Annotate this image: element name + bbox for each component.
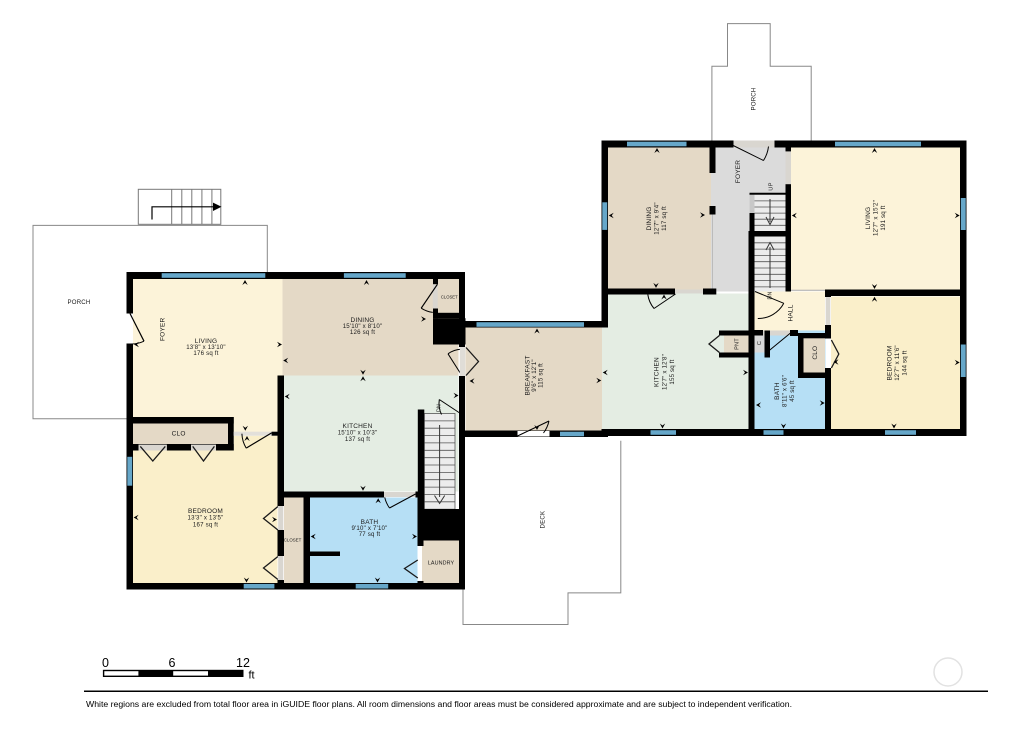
svg-text:117 sq ft: 117 sq ft (661, 206, 668, 231)
svg-text:12'7" x 9'4": 12'7" x 9'4" (654, 202, 661, 234)
svg-text:CLOSET: CLOSET (284, 538, 302, 543)
svg-text:77 sq ft: 77 sq ft (359, 531, 381, 538)
svg-text:176 sq ft: 176 sq ft (193, 350, 218, 357)
svg-text:UP: UP (769, 182, 775, 190)
svg-text:191 sq ft: 191 sq ft (880, 205, 887, 230)
svg-text:167 sq ft: 167 sq ft (193, 521, 218, 528)
svg-text:PORCH: PORCH (67, 299, 90, 306)
svg-text:CLO: CLO (172, 431, 186, 438)
svg-text:115 sq ft: 115 sq ft (538, 363, 545, 388)
svg-text:BATH: BATH (774, 382, 781, 400)
svg-text:PORCH: PORCH (751, 87, 758, 110)
svg-text:8'11" x 6'6": 8'11" x 6'6" (782, 375, 789, 407)
svg-text:DECK: DECK (540, 511, 547, 529)
svg-text:6: 6 (169, 656, 176, 670)
svg-text:144 sq ft: 144 sq ft (902, 350, 909, 375)
svg-text:CLOSET: CLOSET (441, 295, 458, 300)
svg-text:12'7" x 15'2": 12'7" x 15'2" (873, 200, 880, 236)
svg-text:FOYER: FOYER (160, 318, 167, 341)
svg-text:12: 12 (236, 656, 250, 670)
svg-text:DINING: DINING (646, 207, 653, 231)
svg-text:FOYER: FOYER (735, 160, 742, 183)
svg-text:PNT: PNT (735, 338, 741, 350)
svg-text:ft: ft (249, 670, 255, 682)
svg-text:0: 0 (102, 656, 109, 670)
svg-text:LIVING: LIVING (865, 207, 872, 230)
svg-text:CLO: CLO (812, 346, 819, 360)
svg-text:LAUNDRY: LAUNDRY (428, 561, 455, 567)
svg-text:DN: DN (768, 292, 774, 300)
svg-text:C: C (757, 341, 763, 345)
svg-text:12'7" x 11'6": 12'7" x 11'6" (894, 345, 901, 381)
svg-text:KITCHEN: KITCHEN (654, 357, 661, 387)
svg-text:45 sq ft: 45 sq ft (789, 380, 796, 402)
svg-text:155 sq ft: 155 sq ft (669, 359, 676, 384)
svg-text:White regions are excluded fro: White regions are excluded from total fl… (86, 699, 792, 709)
svg-text:HALL: HALL (788, 304, 795, 321)
svg-text:126 sq ft: 126 sq ft (350, 329, 375, 336)
svg-text:DN: DN (437, 404, 443, 412)
svg-text:BEDROOM: BEDROOM (886, 346, 893, 381)
svg-text:12'7" x 12'8": 12'7" x 12'8" (661, 354, 668, 390)
svg-text:137 sq ft: 137 sq ft (345, 436, 370, 443)
